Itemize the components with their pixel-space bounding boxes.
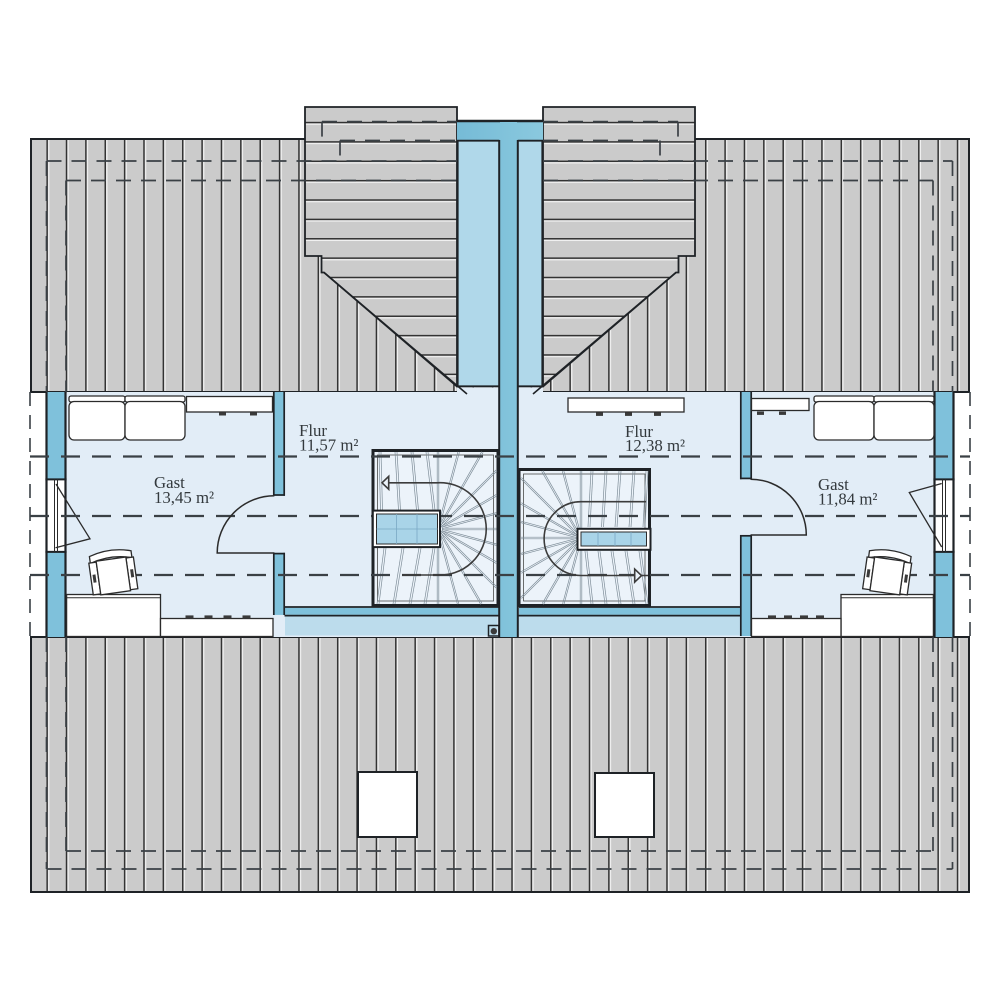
svg-text:11,57 m²: 11,57 m²	[299, 436, 358, 455]
svg-text:11,84 m²: 11,84 m²	[818, 490, 877, 509]
svg-text:12,38 m²: 12,38 m²	[625, 436, 685, 455]
svg-text:13,45 m²: 13,45 m²	[154, 488, 214, 507]
